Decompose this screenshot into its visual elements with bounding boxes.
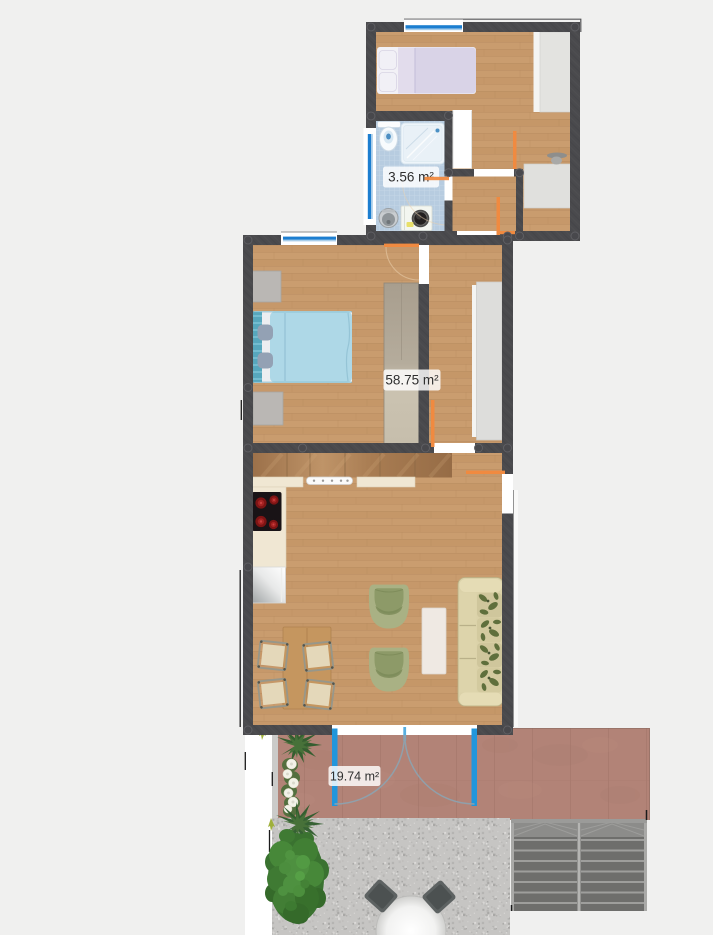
svg-text:58.75 m²: 58.75 m²	[385, 373, 439, 388]
svg-text:19.74 m²: 19.74 m²	[330, 770, 379, 784]
